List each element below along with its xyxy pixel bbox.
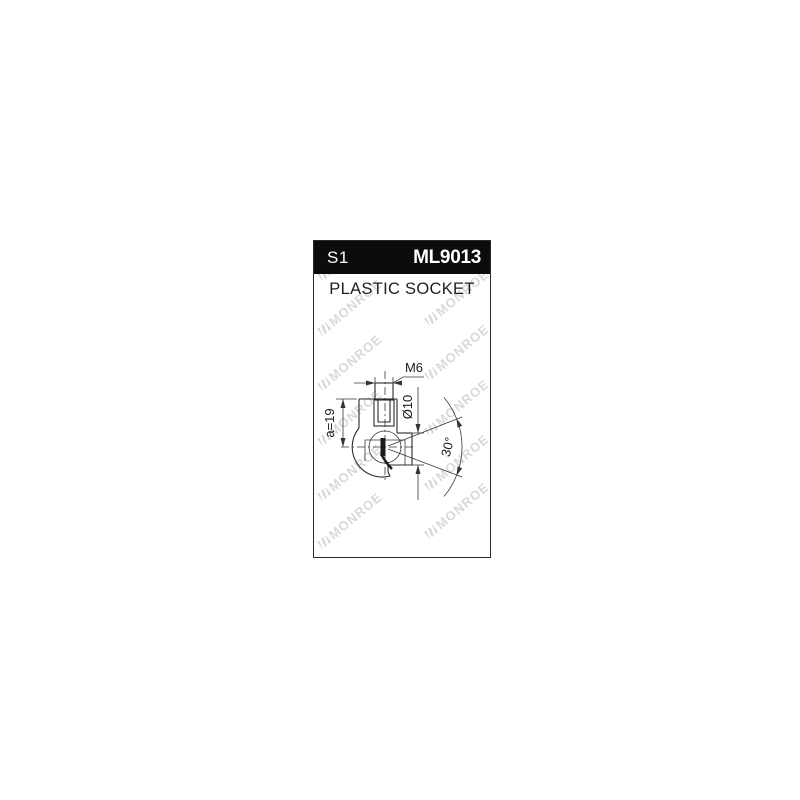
diameter-label: Ø10 [400,395,415,420]
length-label: a=19 [322,408,337,437]
ball-slot [381,438,393,469]
page: { "product_card": { "header": { "type_co… [0,0,800,800]
angle-label: 30° [438,436,457,459]
thread-label: M6 [405,360,423,375]
product-drawing-card: MONROE MONROE MONROE MONROE MONROE MONRO… [313,240,491,558]
technical-drawing: M6 Ø10 a=19 30° [314,241,490,557]
